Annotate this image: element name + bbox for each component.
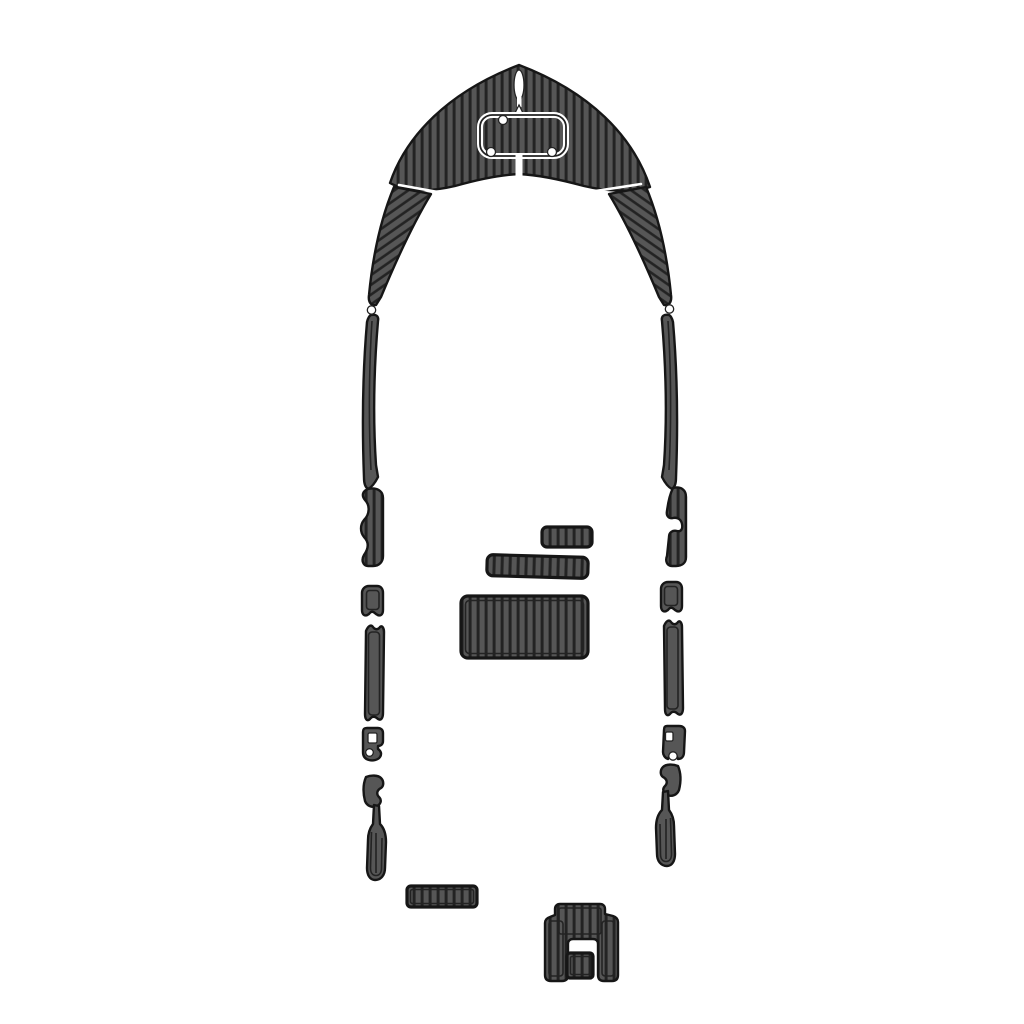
port-scallop-pad: port-scallop-pad [361, 488, 383, 566]
starboard-gunwale-upper-pad: starboard-gunwale-upper-pad [609, 187, 671, 305]
port-side-strip-long: port-side-strip-long [365, 626, 384, 721]
stern-bar-pad: stern-bar-pad [407, 886, 477, 907]
bow-hole-right [548, 148, 557, 157]
starboard-side-strip-long: starboard-side-strip-long [664, 621, 683, 716]
starboard-cleat-notch [666, 732, 674, 741]
boat-decking-diagram: bow-v-pad port-gunwale-upper-pad starboa… [0, 0, 1024, 1024]
transom-insert-pad: transom-insert-pad [567, 953, 593, 978]
product-image-canvas: bow-v-pad port-gunwale-upper-pad starboa… [0, 0, 1024, 1024]
bow-v-pad: bow-v-pad [390, 65, 650, 194]
starboard-scallop-pad: starboard-scallop-pad [666, 487, 686, 566]
port-gunwale-hole [367, 306, 375, 314]
starboard-gunwale-lower-strip: starboard-gunwale-lower-strip [662, 315, 677, 489]
step-pad-small: step-pad-small [542, 527, 592, 547]
port-hook-pad: port-hook-pad [364, 776, 384, 807]
port-gunwale-upper-pad: port-gunwale-upper-pad [369, 187, 431, 305]
starboard-gunwale-hole [665, 305, 673, 313]
port-paddle-pad: port-paddle-pad [367, 805, 386, 880]
port-gunwale-lower-strip: port-gunwale-lower-strip [363, 315, 378, 489]
cockpit-pad-large: cockpit-pad-large [461, 596, 588, 658]
bow-hole-left [487, 148, 496, 157]
bow-hole-top [499, 116, 508, 125]
cockpit-pad-shape [461, 596, 588, 658]
starboard-paddle-pad: starboard-paddle-pad [656, 791, 675, 866]
starboard-cleat-bracket-pad: starboard-cleat-bracket-pad [663, 726, 685, 760]
port-cleat-hole [366, 749, 374, 757]
step-pad-medium: step-pad-medium [487, 555, 589, 579]
step-pad-medium-shape [487, 555, 589, 579]
bow-bottom-gap [516, 153, 523, 177]
starboard-side-strip-short: starboard-side-strip-short [661, 582, 682, 611]
port-cleat-square-cutout [368, 733, 377, 743]
port-side-strip-short: port-side-strip-short [362, 586, 383, 615]
port-cleat-bracket-pad: port-cleat-bracket-pad [363, 728, 383, 760]
bow-teardrop-cutout [514, 70, 524, 100]
starboard-cleat-hole [669, 752, 677, 760]
